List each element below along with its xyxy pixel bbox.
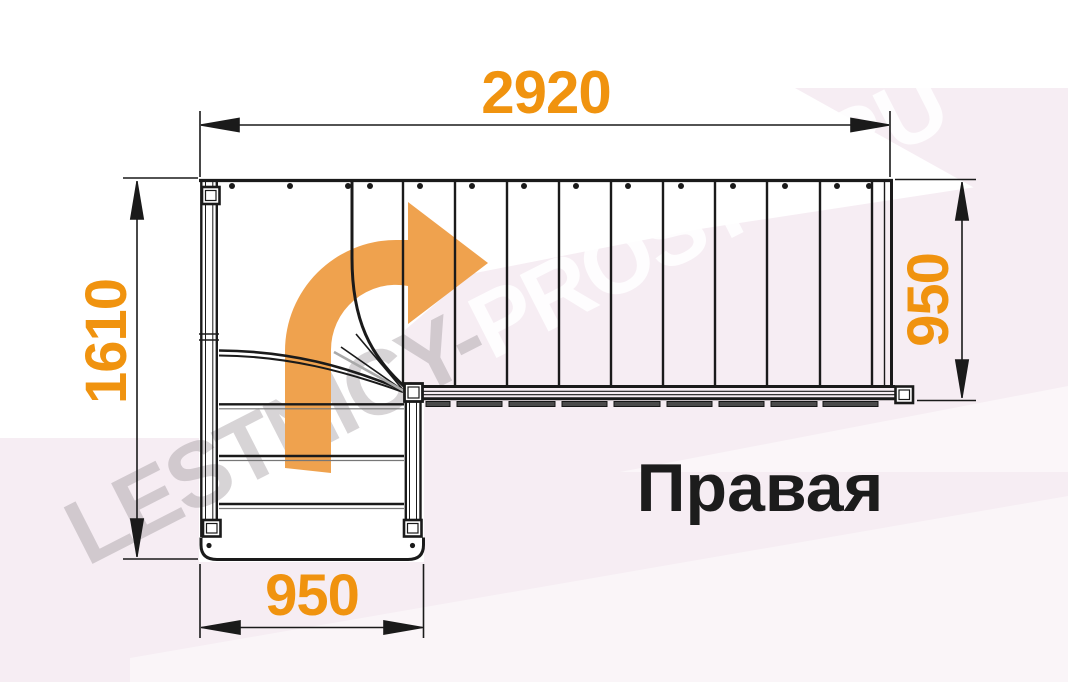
bottom-step-cap bbox=[201, 538, 424, 560]
cap-dot-left bbox=[206, 543, 211, 548]
lower-flight-right-stringer bbox=[406, 402, 421, 520]
cap-dot-right bbox=[410, 543, 415, 548]
dimension-right-label: 950 bbox=[900, 245, 958, 355]
stair-drawing-canvas: LESTNICY-PROSTO.RU bbox=[0, 0, 1068, 682]
dimension-left-label: 1610 bbox=[78, 294, 136, 404]
upper-flight-treads bbox=[403, 182, 872, 385]
direction-arrow-icon bbox=[285, 202, 488, 473]
left-stringer bbox=[199, 182, 219, 537]
dimension-top-label: 2920 bbox=[440, 64, 652, 122]
dimension-bottom-label: 950 bbox=[257, 567, 367, 625]
tread-shadow-segments bbox=[426, 402, 878, 407]
upper-flight-stringer bbox=[421, 387, 895, 399]
baluster-dots bbox=[229, 183, 872, 189]
orientation-label: Правая bbox=[605, 448, 915, 528]
